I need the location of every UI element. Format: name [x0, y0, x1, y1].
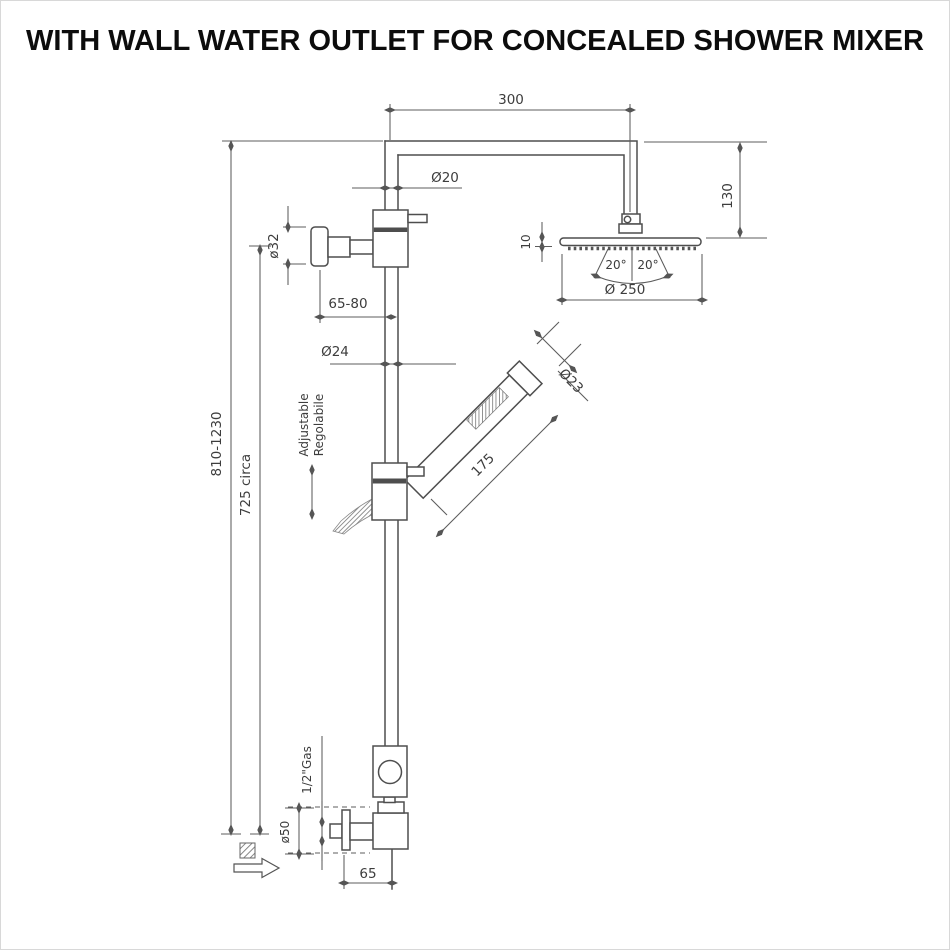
technical-drawing-page: WITH WALL WATER OUTLET FOR CONCEALED SHO…: [0, 0, 950, 950]
dim-arm-pipe-diameter-label: Ø20: [431, 170, 459, 186]
dim-base-offset-label: 65: [359, 866, 376, 882]
dim-wall-clearance-label: 65-80: [328, 296, 367, 312]
dim-spray-angle-right-label: 20°: [637, 258, 658, 272]
dim-head-thickness-label: 10: [519, 234, 533, 249]
shower-column-drawing: WITH WALL WATER OUTLET FOR CONCEALED SHO…: [0, 0, 950, 950]
dim-riser-diameter-label: Ø24: [321, 344, 349, 360]
adjustable-note-it: Regolabile: [312, 394, 326, 457]
page-title: WITH WALL WATER OUTLET FOR CONCEALED SHO…: [26, 25, 924, 57]
dim-head-drop-label: 130: [720, 183, 736, 209]
dim-column-height-label: 810-1230: [209, 412, 225, 477]
adjustable-note-en: Adjustable: [297, 393, 311, 456]
dim-head-diameter-label: Ø 250: [605, 282, 646, 298]
dim-escutcheon-diameter-label: ø50: [278, 821, 292, 844]
dim-inlet-thread-label: 1/2"Gas: [300, 746, 314, 794]
dim-outlet-height-label: 725 circa: [238, 454, 254, 516]
dim-arm-length-label: 300: [498, 92, 524, 108]
dim-spray-angle-left-label: 20°: [605, 258, 626, 272]
